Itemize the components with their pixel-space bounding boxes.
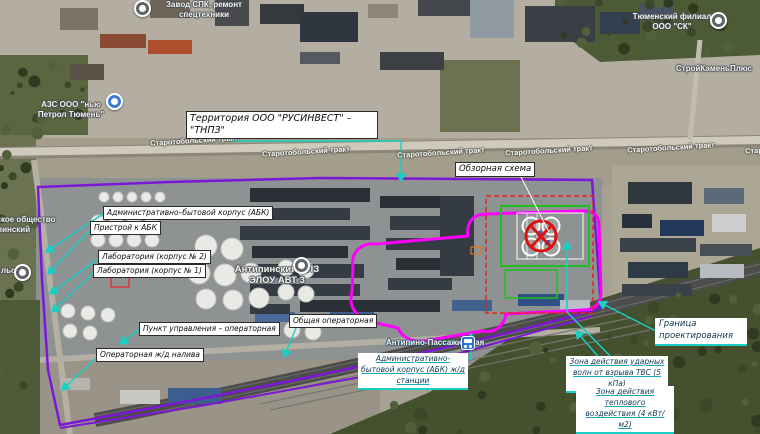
callout-control-point: Пункт управления – операторная [139, 322, 280, 336]
callout-territory: Территория ООО "РУСИНВЕСТ" – "ТНПЗ" [186, 111, 378, 139]
red-building-outline [111, 277, 129, 287]
refinery-pin-icon[interactable] [293, 257, 310, 274]
hazard-zone-magenta [351, 211, 601, 341]
poi-stroykamen[interactable]: СтройКаменьПлюс [668, 64, 760, 74]
tyumen-branch-pin-icon[interactable] [710, 12, 727, 29]
callout-abk-annex: Пристрой к АБК [90, 221, 161, 235]
callout-lab2: Лаборатория (корпус № 2) [98, 250, 211, 264]
gas-station-pin-icon[interactable] [106, 93, 123, 110]
poi-refinery[interactable]: Антипинский НПЗ ЭЛОУ АВТ 3 [222, 264, 332, 287]
railway-station-icon[interactable] [461, 336, 475, 350]
poi-refinery-unit: ЭЛОУ АВТ 3 [222, 275, 332, 286]
poi-garden-society[interactable]: Садоводческое общество Антипинский [0, 215, 60, 234]
callout-abk: Административно–бытовой корпус (АБК) [103, 206, 273, 220]
poi-gas-station[interactable]: АЗС ООО "нью Петрол Тюмень" [30, 100, 112, 119]
callout-station-abk: Административно-бытовой корпус (АБК) ж/д… [358, 353, 468, 390]
callout-common-operator: Общая операторная [289, 314, 377, 328]
factory-pin-icon[interactable] [134, 0, 151, 17]
callout-rail-loading-operator: Операторная ж/д налива [96, 348, 204, 362]
red-cross-circle [526, 221, 556, 251]
callout-design-boundary: Граница проектирования [655, 318, 747, 346]
callout-thermal-zone: Зона действия теплового воздействия (4 к… [576, 386, 674, 434]
poi-factory[interactable]: Завод СПК, ремонт спецтехники [149, 0, 259, 19]
satellite-map[interactable]: Завод СПК, ремонт спецтехники АЗС ООО "н… [0, 0, 760, 434]
callout-lab1: Лаборатория (корпус № 1) [93, 264, 206, 278]
poi-tyumen-branch[interactable]: Тюменский филиал ООО "СК" [628, 12, 716, 31]
clipped-poi-pin-icon[interactable] [14, 264, 31, 281]
callout-overview-scheme: Обзорная схема [455, 162, 535, 177]
poi-refinery-name: Антипинский НПЗ [222, 264, 332, 275]
